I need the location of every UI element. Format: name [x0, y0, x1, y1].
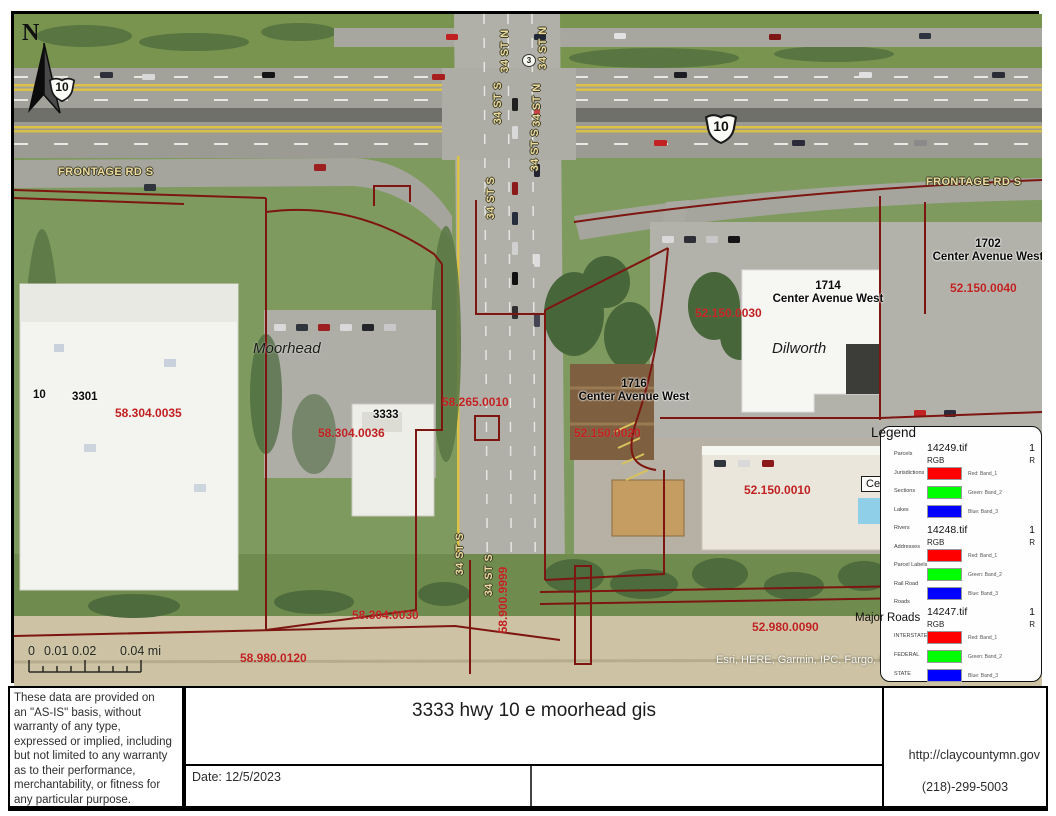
- legend-layer: STATE: [894, 671, 927, 677]
- raster-entry: 14249.tif 1: [927, 442, 1035, 454]
- raster-name: 14248.tif: [927, 524, 967, 536]
- band-row: Green: Band_2: [927, 568, 1035, 581]
- raster-count: 1: [1029, 442, 1035, 454]
- raster-entry: 14247.tif 1: [927, 606, 1035, 618]
- street-label-34stn-1: 34 ST N: [499, 27, 511, 75]
- bottom-border: [8, 806, 1048, 811]
- band-row: Red: Band_1: [927, 631, 1035, 644]
- parcel-id: 52.150.0040: [950, 281, 1017, 295]
- raster-mode-right: R: [1029, 620, 1035, 629]
- raster-count: 1: [1029, 524, 1035, 536]
- raster-entry: 14248.tif 1: [927, 524, 1035, 536]
- raster-mode-label: RGB: [927, 620, 944, 629]
- legend-layer: Sections: [894, 488, 927, 494]
- parcel-id: 58.304.0035: [115, 406, 182, 420]
- band-caption: Blue: Band_3: [968, 509, 998, 515]
- street-label-34sts-5: 34 ST S: [483, 551, 495, 599]
- raster-count: 1: [1029, 606, 1035, 618]
- parcel-id: 52.980.0090: [752, 620, 819, 634]
- scale-tick-label: 0.01: [44, 644, 68, 658]
- street-label-frontage-west: FRONTAGE RD S: [58, 166, 153, 178]
- date-cell-divider: [530, 766, 532, 808]
- red-band-swatch: [927, 631, 962, 644]
- street-label-34sts-3: 34 ST S: [485, 174, 497, 222]
- city-label-dilworth: Dilworth: [772, 340, 826, 357]
- city-label-moorhead: Moorhead: [253, 340, 321, 357]
- raster-mode-label: RGB: [927, 538, 944, 547]
- band-caption: Green: Band_2: [968, 490, 1002, 496]
- band-row: Red: Band_1: [927, 549, 1035, 562]
- raster-name: 14249.tif: [927, 442, 967, 454]
- green-band-swatch: [927, 650, 962, 663]
- scale-bar: 0 0.01 0.02 0.04 mi: [28, 644, 178, 679]
- band-caption: Green: Band_2: [968, 572, 1002, 578]
- band-caption: Red: Band_1: [968, 471, 997, 477]
- raster-mode: RGB R: [927, 538, 1035, 547]
- address-label-1702: 1702 Center Avenue West: [913, 238, 1042, 264]
- raster-mode-right: R: [1029, 538, 1035, 547]
- parcel-id: 52.150.0030: [695, 306, 762, 320]
- scale-tick-label: 0.04 mi: [120, 644, 161, 658]
- legend-layer: Lakes: [894, 507, 927, 513]
- parcel-id: 58.304.0036: [318, 426, 385, 440]
- basemap-attribution: Esri, HERE, Garmin, IPC, Fargo, North: [716, 654, 906, 666]
- band-caption: Blue: Band_3: [968, 673, 998, 679]
- address-label-3301: 3301: [72, 391, 98, 403]
- band-row: Green: Band_2: [927, 486, 1035, 499]
- page-title: 3333 hwy 10 e moorhead gis: [186, 700, 882, 722]
- raster-mode-right: R: [1029, 456, 1035, 465]
- map-canvas: FRONTAGE RD S FRONTAGE RD S 34 ST N 34 S…: [11, 11, 1039, 683]
- band-caption: Green: Band_2: [968, 654, 1002, 660]
- legend-layer: Addresses: [894, 544, 927, 550]
- raster-mode-label: RGB: [927, 456, 944, 465]
- legend-layer: Parcel Labels: [894, 562, 927, 568]
- title-cell: 3333 hwy 10 e moorhead gis: [184, 686, 884, 766]
- legend-layer: FEDERAL: [894, 652, 927, 658]
- parcel-id-vertical: 58.900.9999: [496, 564, 510, 636]
- band-caption: Blue: Band_3: [968, 591, 998, 597]
- band-caption: Red: Band_1: [968, 553, 997, 559]
- legend-layer: Rivers: [894, 525, 927, 531]
- legend-panel: Legend Parcels Jurisdictions Sections La…: [880, 426, 1042, 682]
- scale-tick-label: 0.02: [72, 644, 96, 658]
- north-arrow-icon: N: [22, 20, 70, 126]
- raster-name: 14247.tif: [927, 606, 967, 618]
- us-route-shield-icon: 10: [48, 76, 76, 102]
- street-label-frontage-east: FRONTAGE RD S: [926, 176, 1021, 188]
- street-label-34stn-3: 34 ST N: [531, 81, 543, 129]
- band-row: Green: Band_2: [927, 650, 1035, 663]
- address-street: Center Avenue West: [559, 391, 709, 404]
- address-street: Center Avenue West: [753, 293, 903, 306]
- phone-number: (218)-299-5003: [884, 780, 1046, 794]
- parcel-id: 52.150.0010: [744, 483, 811, 497]
- major-roads-label: Major Roads: [855, 612, 920, 624]
- parcel-id: 58.265.0010: [442, 395, 509, 409]
- shield-number: 10: [48, 80, 76, 94]
- legend-layer: Jurisdictions: [894, 470, 927, 476]
- scale-bar-labels: 0 0.01 0.02 0.04 mi: [28, 644, 178, 658]
- red-band-swatch: [927, 467, 962, 480]
- band-row: Red: Band_1: [927, 467, 1035, 480]
- address-label-3333: 3333: [373, 409, 399, 421]
- legend-layer-list: Parcels Jurisdictions Sections Lakes Riv…: [894, 451, 927, 605]
- parcel-id: 58.980.0120: [240, 651, 307, 665]
- address-number: 1714: [753, 280, 903, 293]
- legend-layer: Parcels: [894, 451, 927, 457]
- band-row: Blue: Band_3: [927, 505, 1035, 518]
- band-caption: Red: Band_1: [968, 635, 997, 641]
- gis-print-page: FRONTAGE RD S FRONTAGE RD S 34 ST N 34 S…: [0, 0, 1056, 816]
- street-label-34sts-2: 34 ST S: [529, 126, 541, 174]
- date-label: Date: 12/5/2023: [192, 770, 281, 784]
- green-band-swatch: [927, 486, 962, 499]
- address-street: Center Avenue West: [913, 251, 1042, 264]
- shield-number: 10: [703, 118, 739, 134]
- address-label-1716: 1716 Center Avenue West: [559, 378, 709, 404]
- raster-mode: RGB R: [927, 620, 1035, 629]
- legend-layer: Rail Road: [894, 581, 927, 587]
- contact-cell: http://claycountymn.gov (218)-299-5003: [882, 686, 1048, 810]
- address-label-10: 10: [33, 389, 46, 401]
- street-label-34stn-2: 34 ST N: [537, 24, 549, 72]
- disclaimer-box: These data are provided on an "AS-IS" ba…: [8, 686, 184, 810]
- blue-band-swatch: [927, 587, 962, 600]
- raster-mode: RGB R: [927, 456, 1035, 465]
- legend-layer: Roads: [894, 599, 927, 605]
- green-band-swatch: [927, 568, 962, 581]
- parcel-id: 58.304.0030: [352, 608, 419, 622]
- legend-layer: INTERSTATE: [894, 633, 927, 639]
- blue-band-swatch: [927, 669, 962, 682]
- junction-badge: 3: [522, 54, 536, 67]
- red-band-swatch: [927, 549, 962, 562]
- legend-raster-list: 14249.tif 1 RGB R Red: Band_1 Green: Ban…: [927, 439, 1035, 688]
- address-number: 1702: [913, 238, 1042, 251]
- parcel-id: 52.150.0020: [574, 426, 641, 440]
- legend-title: Legend: [871, 425, 916, 440]
- scale-bar-ticks: [28, 658, 148, 674]
- street-label-34sts-4: 34 ST S: [454, 530, 466, 578]
- us-route-shield-icon: 10: [703, 112, 739, 144]
- street-label-34sts-1: 34 ST S: [492, 79, 504, 127]
- legend-road-layer-list: INTERSTATE FEDERAL STATE: [894, 633, 927, 677]
- scale-tick-label: 0: [28, 644, 35, 658]
- website-url: http://claycountymn.gov: [909, 748, 1040, 762]
- band-row: Blue: Band_3: [927, 669, 1035, 682]
- address-label-1714: 1714 Center Avenue West: [753, 280, 903, 306]
- blue-band-swatch: [927, 505, 962, 518]
- band-row: Blue: Band_3: [927, 587, 1035, 600]
- address-number: 1716: [559, 378, 709, 391]
- date-cell: Date: 12/5/2023: [184, 764, 884, 810]
